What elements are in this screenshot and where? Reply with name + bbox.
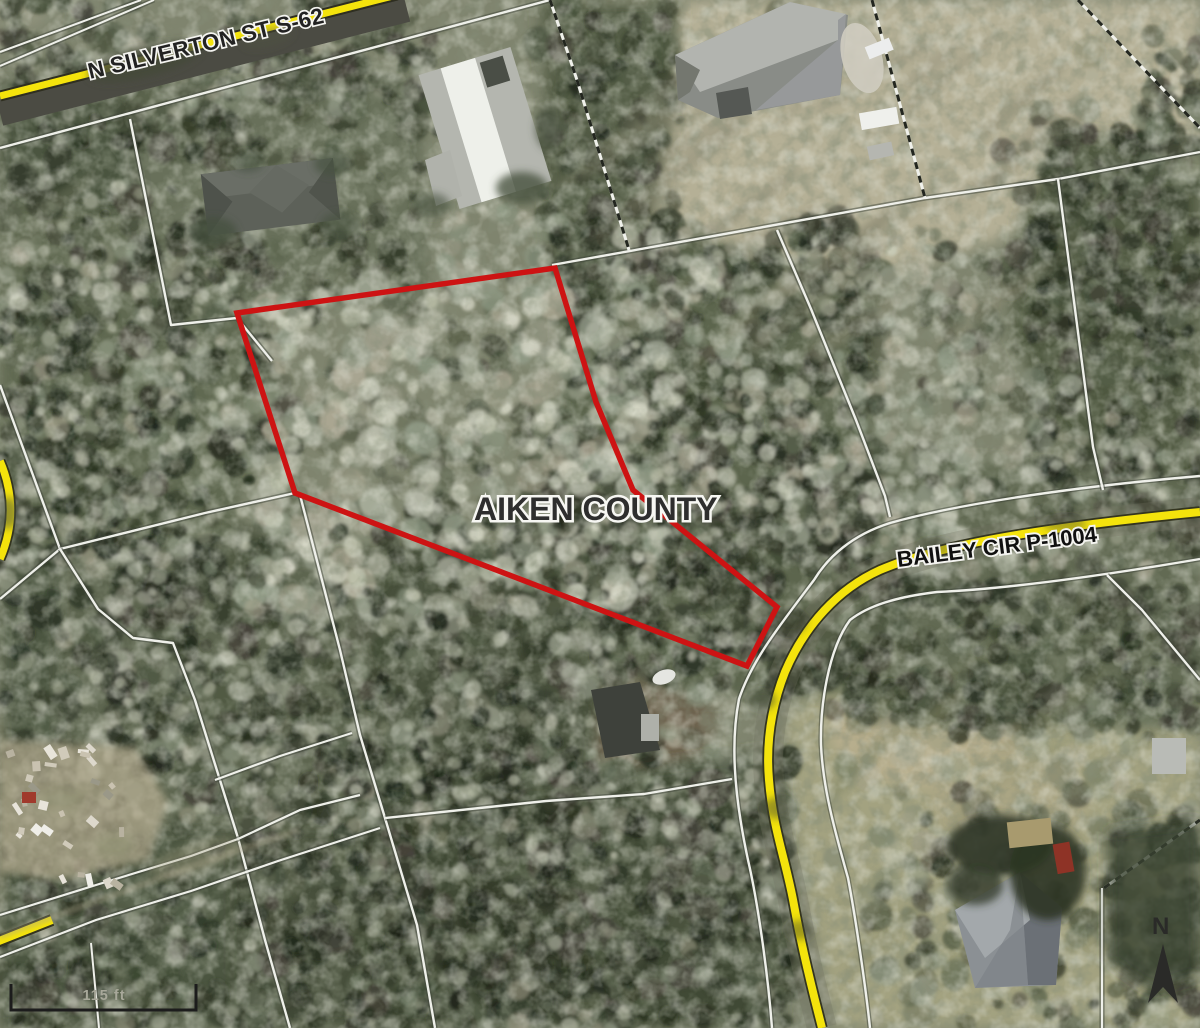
svg-text:115 ft: 115 ft	[82, 988, 125, 1004]
svg-text:N: N	[1152, 913, 1169, 940]
svg-text:AIKEN COUNTY: AIKEN COUNTY	[474, 491, 718, 527]
